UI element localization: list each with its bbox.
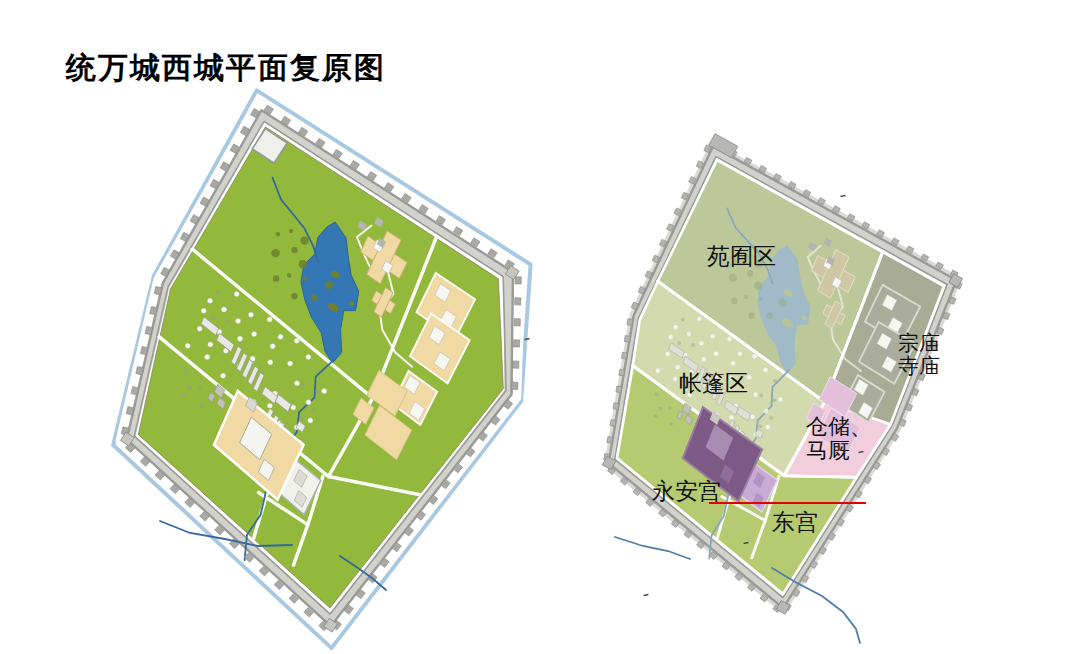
zone-label-storage: 仓储、 马厩 (806, 415, 872, 463)
figure-stage: 统万城西城平面复原图 苑囿区 帐篷区 宗庙 寺庙 仓储、 马厩 永安宫 东宫 (0, 0, 1080, 654)
left-map-west-city (113, 90, 530, 648)
zone-label-temple-line1: 宗庙 (898, 332, 940, 355)
figure-title: 统万城西城平面复原图 (66, 48, 386, 89)
zone-label-storage-line2: 马厩 (806, 439, 872, 463)
zone-label-garden: 苑囿区 (707, 244, 776, 269)
zone-label-tent: 帐篷区 (679, 371, 748, 396)
zone-label-east-palace: 东宫 (772, 510, 818, 535)
zone-label-yongan-palace: 永安宫 (652, 479, 721, 504)
zone-label-storage-line1: 仓储、 (806, 415, 872, 439)
zone-label-temple-line2: 寺庙 (898, 355, 940, 378)
map-canvas (0, 0, 1080, 654)
zone-label-temple: 宗庙 寺庙 (898, 332, 940, 377)
